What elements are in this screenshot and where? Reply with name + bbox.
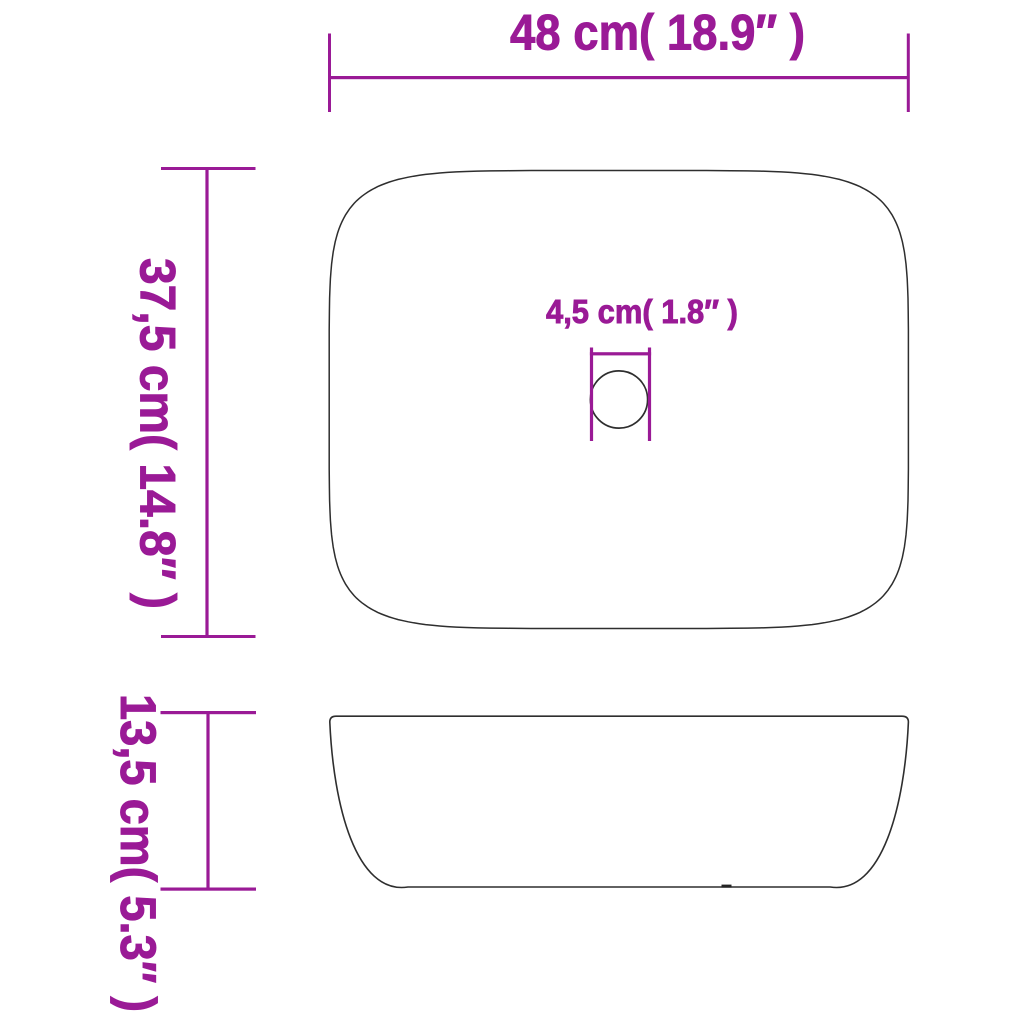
svg-text:13,5 cm( 5.3″ ): 13,5 cm( 5.3″ ) [110,694,166,1012]
svg-text:48 cm( 18.9″ ): 48 cm( 18.9″ ) [510,5,805,61]
svg-text:37,5 cm( 14.8″ ): 37,5 cm( 14.8″ ) [130,258,186,609]
svg-text:4,5 cm( 1.8″ ): 4,5 cm( 1.8″ ) [546,293,738,330]
